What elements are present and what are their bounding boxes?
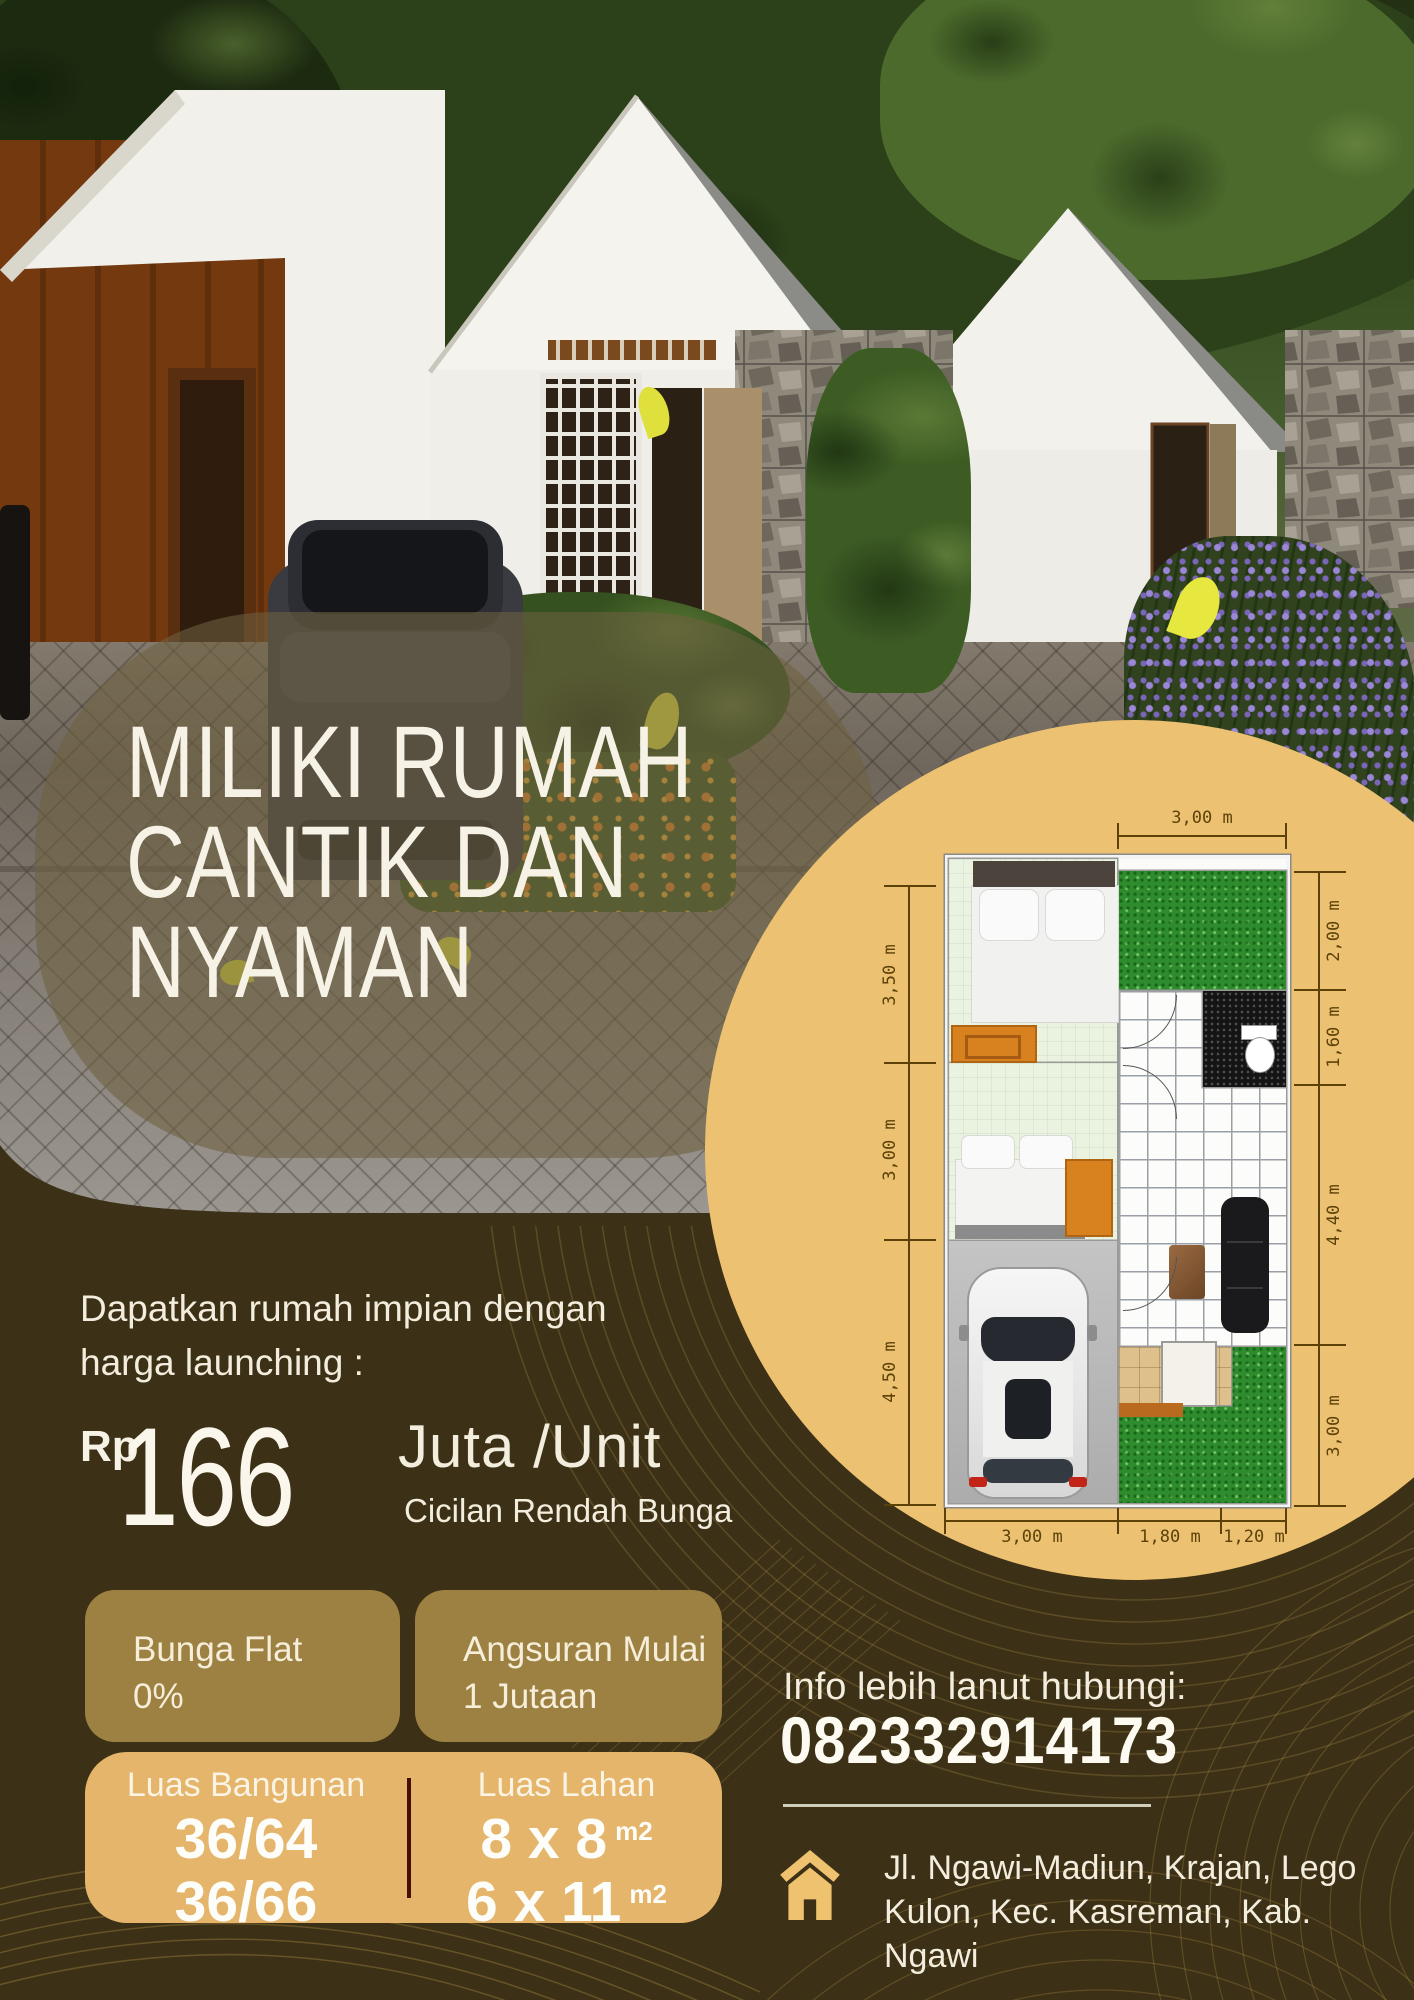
card-angsuran-value: 1 Jutaan [463, 1673, 706, 1720]
card-angsuran-title: Angsuran Mulai [463, 1626, 706, 1673]
dim-tick [884, 885, 936, 887]
dim-label-bottom: 1,20 m [1223, 1527, 1285, 1547]
dim-tick [1220, 1508, 1222, 1534]
dim-tick [1117, 823, 1119, 849]
sofa [1221, 1197, 1269, 1333]
dim-line-bottom [945, 1520, 1287, 1522]
dim-label-bottom: 3,00 m [1001, 1527, 1063, 1547]
toilet-bowl [1245, 1037, 1275, 1073]
price-note: Cicilan Rendah Bunga [404, 1492, 732, 1530]
card-luas-lahan: Luas Lahan 8 x 8m2 6 x 11m2 [411, 1752, 722, 1923]
bed-1-pillow [979, 889, 1039, 941]
dim-tick [1294, 989, 1346, 991]
dim-label-right: 3,00 m [1324, 1395, 1344, 1457]
floorplan-car [967, 1267, 1089, 1499]
card-bunga-flat-value: 0% [133, 1673, 302, 1720]
sofa-cushion-line [1227, 1287, 1263, 1289]
card-luas-bangunan: Luas Bangunan 36/64 36/66 [85, 1752, 407, 1923]
bedroom-2-wardrobe [1065, 1159, 1113, 1237]
luas-lahan-unit: m2 [615, 1816, 653, 1846]
house-icon [778, 1848, 842, 1922]
bed-2-pillow [961, 1135, 1015, 1169]
bed-1-headboard [973, 861, 1115, 887]
card-angsuran: Angsuran Mulai 1 Jutaan [415, 1590, 722, 1742]
card-bunga-flat: Bunga Flat 0% [85, 1590, 400, 1742]
dim-label-right: 4,40 m [1324, 1184, 1344, 1246]
dim-tick [1294, 1344, 1346, 1346]
car-taillight [1069, 1477, 1087, 1487]
luas-lahan-size-1: 8 x 8 [480, 1807, 607, 1871]
luas-bangunan-title: Luas Bangunan [85, 1766, 407, 1805]
floorplan-step [1119, 1403, 1183, 1417]
card-bunga-flat-title: Bunga Flat [133, 1626, 302, 1673]
dim-label-left: 3,00 m [880, 1119, 900, 1181]
dim-line-right [1318, 872, 1320, 1507]
dim-label-bottom: 1,80 m [1139, 1527, 1201, 1547]
car-mirror [959, 1325, 969, 1341]
floorplan [945, 855, 1290, 1507]
divider-rule [783, 1804, 1151, 1807]
address-line-2: Kulon, Kec. Kasreman, Kab. Ngawi [884, 1890, 1414, 1978]
car-taillight [969, 1477, 987, 1487]
luas-lahan-title: Luas Lahan [411, 1766, 722, 1805]
floorplan-table [1161, 1341, 1217, 1407]
poster-page: MILIKI RUMAH CANTIK DAN NYAMAN [0, 0, 1414, 2000]
price-unit: Juta /Unit [398, 1412, 661, 1481]
luas-lahan-unit: m2 [629, 1879, 667, 1909]
bed-1-pillow [1045, 889, 1105, 941]
phone-number: 082332914173 [780, 1702, 1178, 1778]
dim-line-top [1118, 835, 1287, 837]
intro-line-1: Dapatkan rumah impian dengan [80, 1282, 607, 1336]
address-line-1: Jl. Ngawi-Madiun, Krajan, Lego [884, 1846, 1414, 1890]
dim-line-left [908, 886, 910, 1506]
dim-label-top: 3,00 m [1171, 808, 1233, 828]
luas-bangunan-value-2: 36/66 [85, 1874, 407, 1931]
bedroom-1-desk-top [965, 1035, 1021, 1059]
car-mirror [1087, 1325, 1097, 1341]
address: Jl. Ngawi-Madiun, Krajan, Lego Kulon, Ke… [884, 1846, 1414, 1979]
dim-tick [1294, 871, 1346, 873]
price-amount: 166 [118, 1396, 293, 1558]
dim-label-right: 1,60 m [1324, 1006, 1344, 1068]
dim-tick [1117, 1508, 1119, 1534]
intro-line-2: harga launching : [80, 1336, 607, 1390]
floorplan-garden-top [1119, 871, 1286, 991]
dim-tick [884, 1239, 936, 1241]
car-windshield [981, 1317, 1075, 1363]
car-sunroof [1005, 1379, 1051, 1439]
card-luas: Luas Bangunan 36/64 36/66 Luas Lahan 8 x… [85, 1752, 722, 1923]
intro-text: Dapatkan rumah impian dengan harga launc… [80, 1282, 607, 1389]
dim-label-left: 4,50 m [880, 1341, 900, 1403]
luas-lahan-size-2: 6 x 11 [466, 1870, 621, 1934]
luas-lahan-value-2: 6 x 11m2 [411, 1874, 722, 1931]
dim-tick [1285, 823, 1287, 849]
car-rear-window [983, 1459, 1073, 1483]
dim-tick [884, 1062, 936, 1064]
dim-tick [1294, 1084, 1346, 1086]
sofa-cushion-line [1227, 1241, 1263, 1243]
luas-bangunan-value-1: 36/64 [85, 1811, 407, 1868]
dim-tick [1285, 1508, 1287, 1534]
dim-label-left: 3,50 m [880, 944, 900, 1006]
dim-label-right: 2,00 m [1324, 900, 1344, 962]
luas-lahan-value-1: 8 x 8m2 [411, 1811, 722, 1868]
dim-tick [944, 1508, 946, 1534]
dim-tick [1294, 1505, 1346, 1507]
dim-tick [884, 1504, 936, 1506]
